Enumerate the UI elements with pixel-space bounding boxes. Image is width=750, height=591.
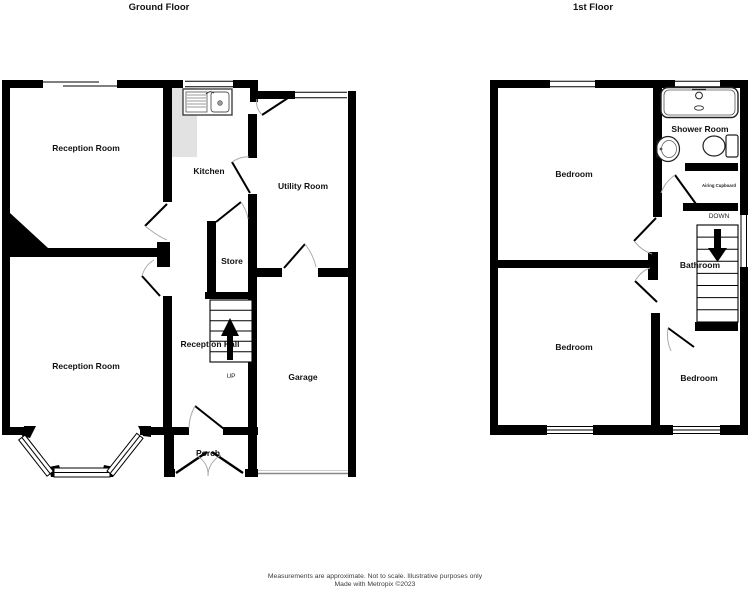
room-label-kitchen: Kitchen — [193, 166, 224, 176]
stairs-down-label: DOWN — [709, 213, 730, 220]
bay-window-right — [107, 433, 143, 476]
bay-window-left — [19, 435, 54, 476]
bedroom-right-window — [673, 425, 720, 435]
room-label-shower-room: Shower Room — [671, 124, 729, 134]
first-floor-title: 1st Floor — [573, 2, 613, 13]
shower-basin — [657, 137, 680, 162]
footer-disclaimer: Measurements are approximate. Not to sca… — [268, 573, 483, 580]
room-label-reception-bottom: Reception Room — [52, 361, 120, 371]
room-label-bathroom: Bathroom — [680, 260, 721, 270]
room-label-utility: Utility Room — [278, 181, 328, 191]
room-label-store: Store — [221, 256, 243, 266]
room-label-bedroom-right: Bedroom — [680, 373, 718, 383]
stairs-up-label: UP — [226, 373, 235, 380]
toilet — [703, 135, 738, 157]
footer: Measurements are approximate. Not to sca… — [268, 573, 483, 588]
room-label-garage: Garage — [288, 372, 318, 382]
bedroom-top-window — [550, 80, 595, 88]
shower-bath — [661, 88, 738, 118]
bedroom-left-window — [547, 425, 593, 435]
room-label-reception-top: Reception Room — [52, 143, 120, 153]
ground-floor-plan: Ground Floor — [2, 2, 356, 477]
garage-door — [258, 471, 348, 474]
room-label-airing-cupboard: Airing Cupboard — [702, 183, 736, 188]
floorplan-canvas: Ground Floor — [0, 0, 750, 591]
stairwell-side-window — [739, 215, 749, 267]
bay-window-bottom — [54, 468, 110, 477]
footer-credit: Made with Metropix ©2023 — [335, 580, 416, 588]
reception-top-window — [43, 80, 117, 88]
kitchen-sink — [183, 89, 232, 115]
room-label-bedroom-top: Bedroom — [555, 169, 593, 179]
first-floor-plan: 1st Floor — [490, 2, 749, 435]
room-label-bedroom-left: Bedroom — [555, 342, 593, 352]
utility-window — [295, 91, 347, 99]
floorplan-page: Ground Floor — [0, 0, 750, 591]
kitchen-window — [185, 80, 233, 88]
ground-floor-title: Ground Floor — [129, 2, 190, 13]
